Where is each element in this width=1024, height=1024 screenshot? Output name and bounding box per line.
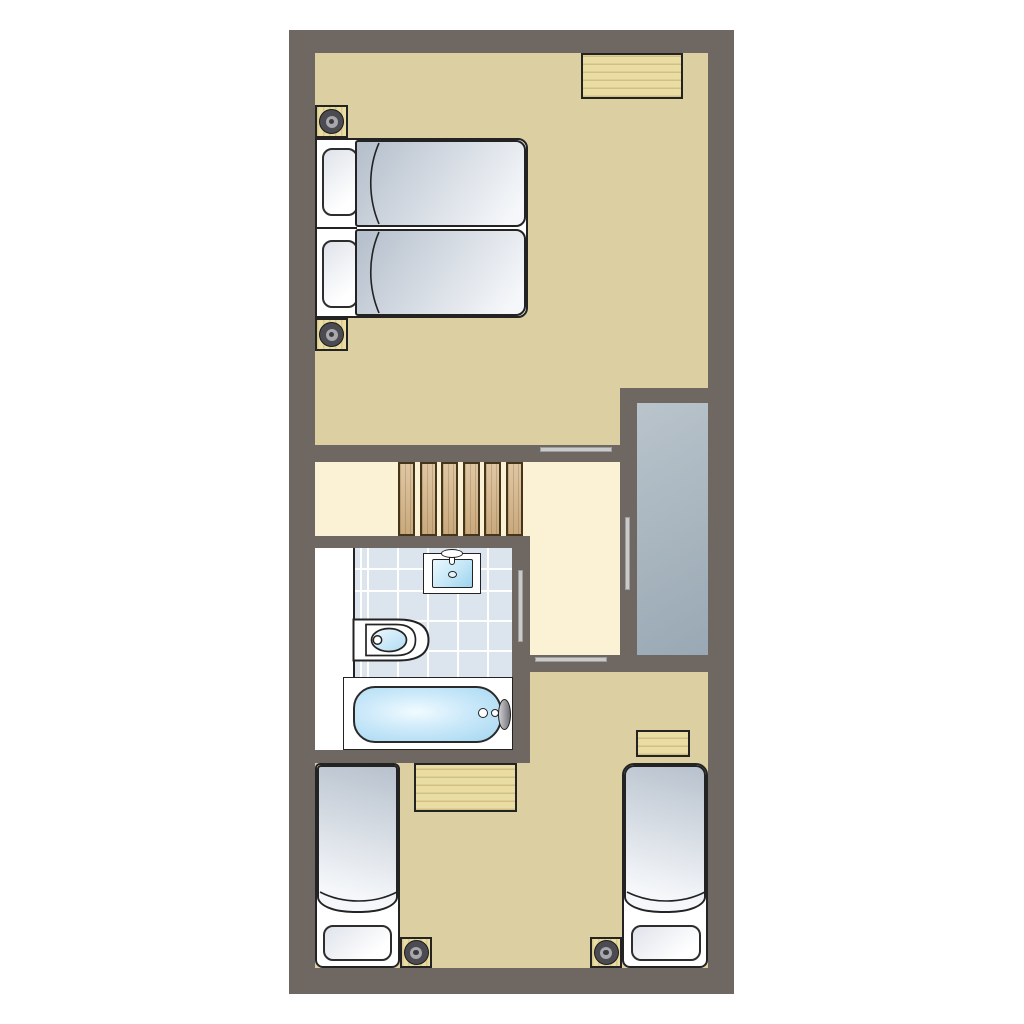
duvet [355,229,526,316]
void-opening [625,517,630,590]
pillow [322,148,358,216]
pillow [322,240,358,308]
stair-tread [506,462,523,536]
side-table-bottom-bedroom [636,730,690,757]
bedside-table-bottom-2 [590,937,622,968]
staircase [398,462,523,536]
washbasin [423,553,481,594]
door-opening-bathroom [518,570,523,642]
door-opening-bottom-bedroom [535,657,607,662]
bathtub [343,677,513,750]
desk-bottom-bedroom [414,763,517,812]
bedside-table-top-1 [315,105,348,138]
lamp-icon [404,940,429,965]
duvet [317,765,398,913]
lamp-icon [319,109,344,134]
stair-tread [484,462,501,536]
overflow [491,709,499,717]
duvet [355,140,526,227]
pillow [323,925,392,961]
single-bed-right [622,763,708,968]
lamp-icon [319,322,344,347]
stair-tread [398,462,415,536]
tap-icon [498,699,511,730]
floor-plan: Toilet [0,0,1024,1024]
toilet: Toilet [352,618,430,662]
duvet [624,765,706,913]
drain [448,571,457,578]
pillow [631,925,701,961]
tap-spout [449,557,455,565]
door-opening-top-bedroom [540,447,612,452]
stair-tread [441,462,458,536]
stair-tread [420,462,437,536]
single-bed-left [315,763,400,968]
stair-void [637,403,708,655]
top-bedroom-floor-nook [315,388,620,445]
bedside-table-bottom-1 [400,937,432,968]
drain [478,708,488,718]
bedside-table-top-2 [315,318,348,351]
desk-top-bedroom [581,53,683,99]
stair-tread [463,462,480,536]
corridor-floor [530,462,620,655]
double-bed [315,138,528,318]
bed-divider [317,227,357,229]
lamp-icon [594,940,619,965]
